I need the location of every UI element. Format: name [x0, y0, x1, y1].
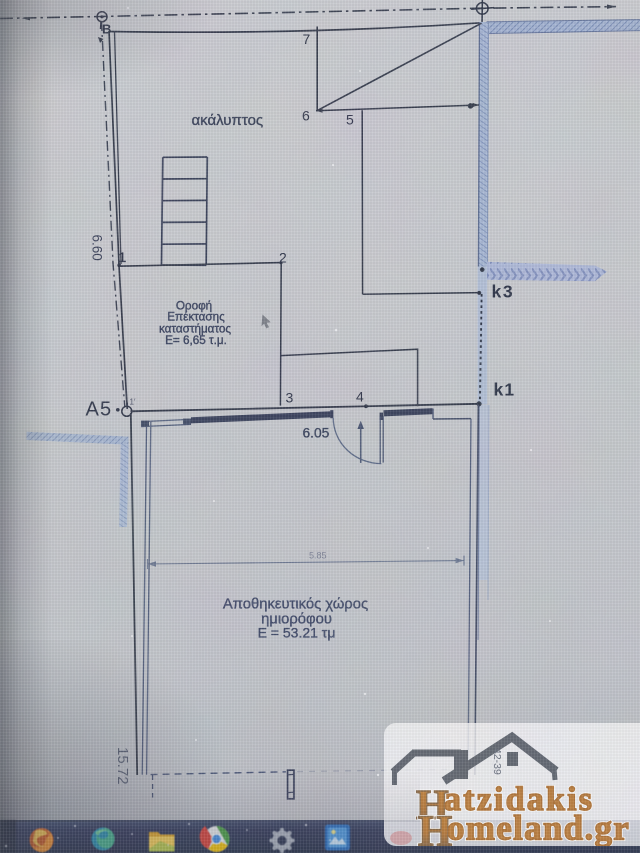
svg-text:k3: k3	[492, 282, 515, 302]
svg-text:ακάλυπτος: ακάλυπτος	[192, 112, 264, 129]
svg-text:omeland.gr: omeland.gr	[447, 809, 630, 847]
svg-text:Ε = 53.21 τμ: Ε = 53.21 τμ	[258, 625, 336, 641]
svg-text:Αποθηκευτικός χώρος: Αποθηκευτικός χώρος	[223, 597, 368, 613]
svg-text:1: 1	[119, 249, 127, 265]
svg-text:5: 5	[346, 112, 354, 128]
svg-text:A5: A5	[86, 399, 113, 421]
svg-text:6.05: 6.05	[303, 426, 330, 441]
svg-text:7: 7	[303, 31, 311, 47]
svg-text:Ε= 6,65 τ.μ.: Ε= 6,65 τ.μ.	[165, 334, 227, 347]
svg-text:2: 2	[279, 250, 287, 266]
svg-text:1′: 1′	[130, 398, 136, 407]
svg-text:42-39: 42-39	[491, 748, 503, 775]
svg-text:5.85: 5.85	[309, 551, 327, 561]
svg-text:k1: k1	[494, 380, 516, 400]
svg-text:6.60: 6.60	[90, 235, 105, 261]
svg-text:6: 6	[302, 108, 310, 124]
svg-text:3: 3	[286, 390, 294, 406]
svg-text:4: 4	[356, 389, 364, 405]
svg-text:15.72: 15.72	[114, 747, 131, 785]
